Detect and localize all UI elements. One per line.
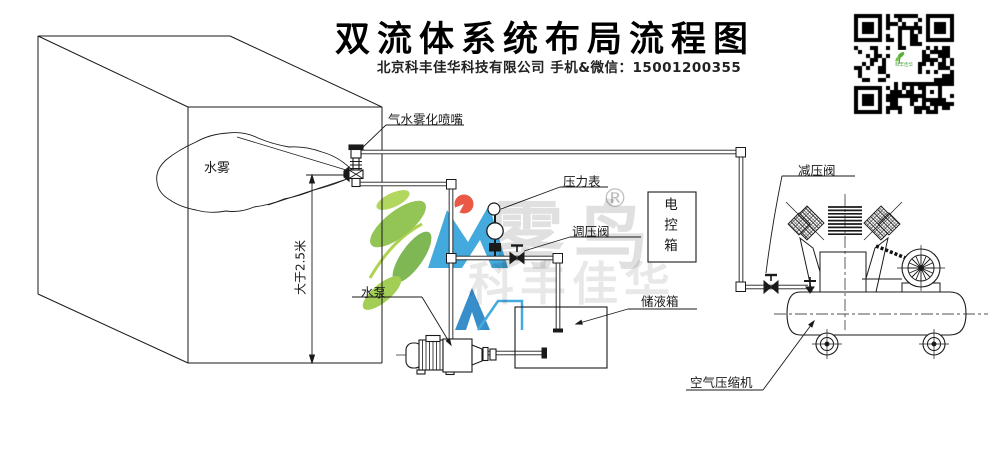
control-box-label: 电控箱 (659, 197, 679, 259)
flow-diagram-page: 雾鸟 ® 科丰佳华 (0, 0, 992, 460)
company-subtitle: 北京科丰佳华科技有限公司 手机&微信：15001200355 (377, 56, 741, 76)
pressure-gauge-label: 压力表 (563, 171, 601, 190)
mist-label: 水雾 (204, 157, 230, 176)
regulating-valve-label: 调压阀 (572, 221, 610, 240)
page-title: 双流体系统布局流程图 (335, 11, 755, 62)
storage-tank (515, 307, 607, 368)
mist-cloud (157, 133, 356, 213)
air-compressor-drawing (764, 194, 988, 359)
registered-mark: ® (602, 184, 628, 214)
room-box (38, 36, 382, 363)
dimension-label: 大于2.5米 (292, 236, 309, 300)
storage-tank-label: 储液箱 (641, 291, 679, 310)
sprout-leaf-icon (891, 50, 907, 66)
qr-code: 科丰佳华 (853, 13, 955, 115)
reducing-valve-label: 减压阀 (798, 160, 836, 179)
air-compressor-label: 空气压缩机 (690, 372, 753, 391)
nozzle-label: 气水雾化喷嘴 (388, 109, 463, 128)
reducing-valve (764, 275, 778, 293)
qr-center-logo: 科丰佳华 (891, 50, 917, 80)
height-dimension (306, 175, 352, 363)
water-pump-label: 水泵 (361, 282, 386, 301)
water-pump-drawing (396, 336, 496, 375)
